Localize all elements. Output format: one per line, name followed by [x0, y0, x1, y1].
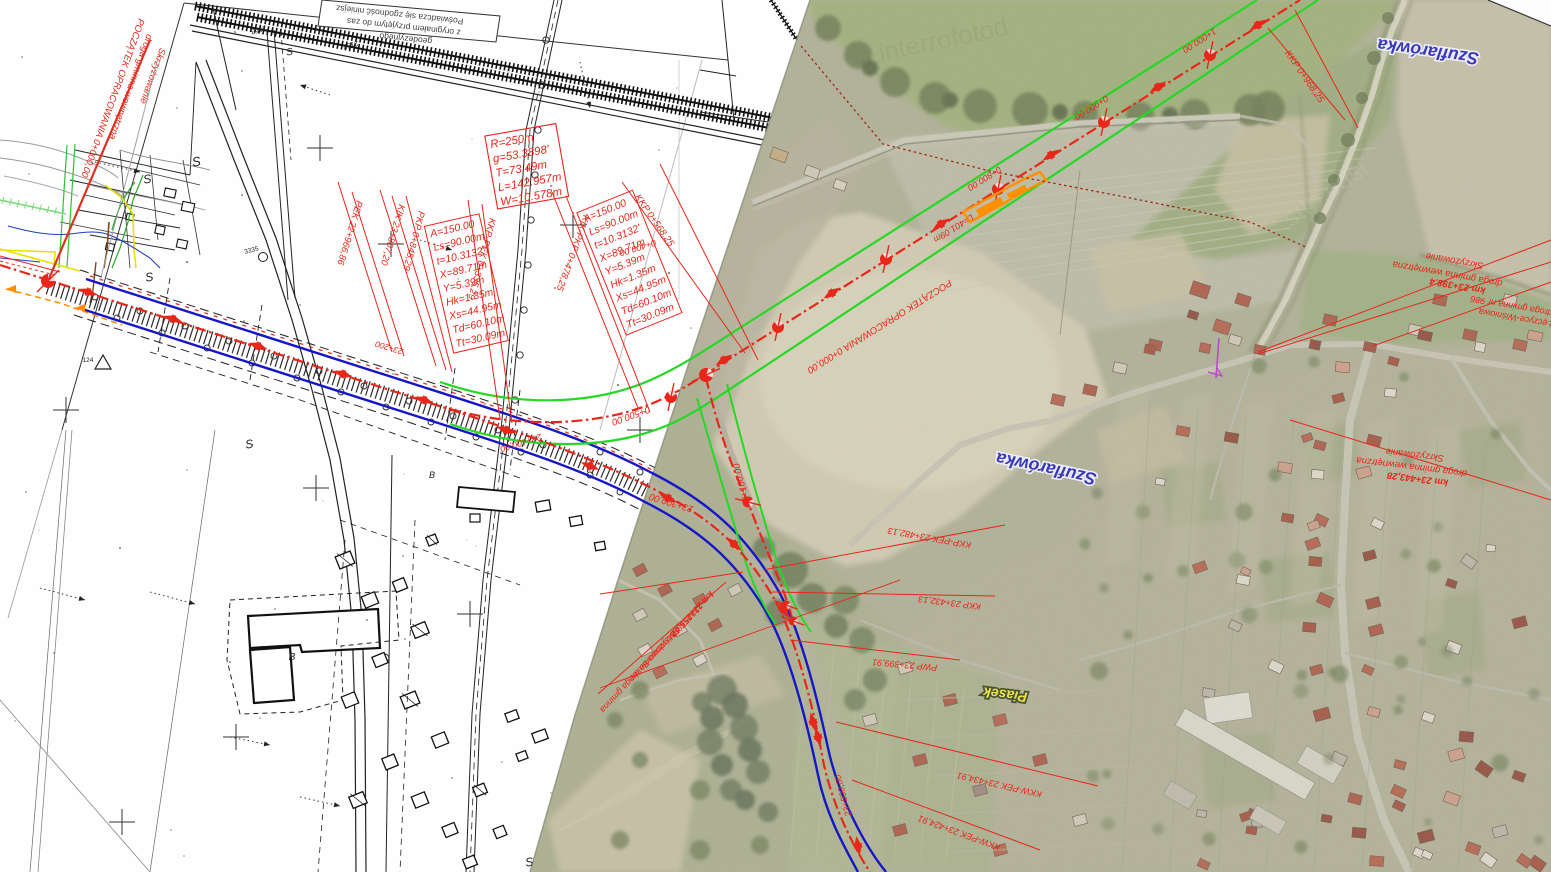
- svg-text:B: B: [429, 470, 435, 480]
- svg-text:124: 124: [83, 357, 94, 364]
- svg-text:B: B: [289, 652, 296, 663]
